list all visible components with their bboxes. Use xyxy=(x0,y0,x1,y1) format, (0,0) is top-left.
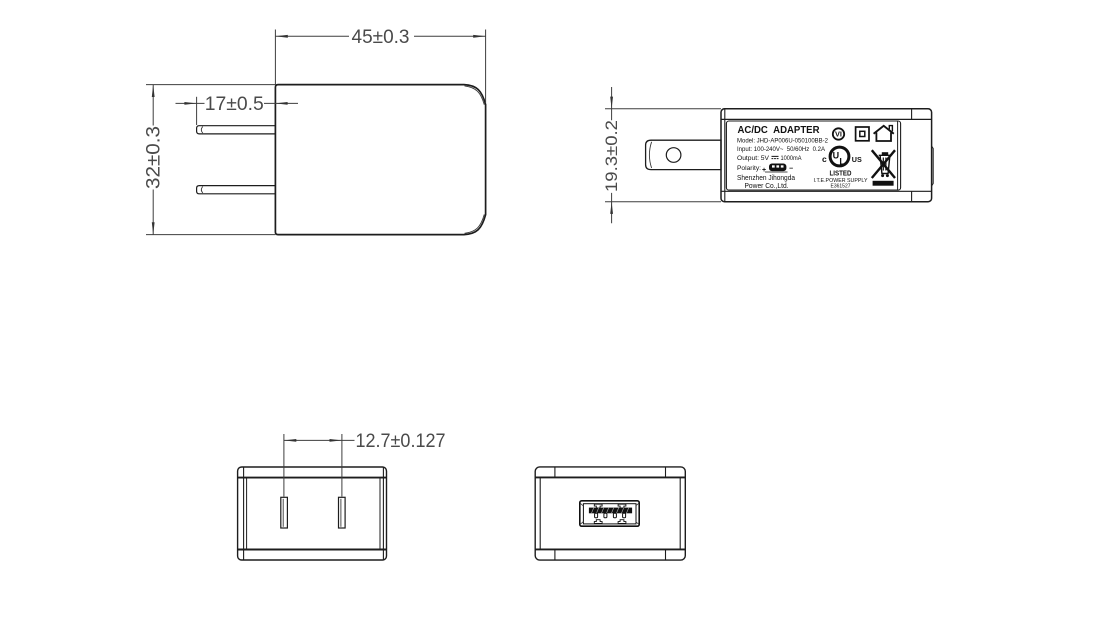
svg-text:1000mA: 1000mA xyxy=(781,155,803,162)
svg-text:−: − xyxy=(789,165,793,172)
svg-text:c: c xyxy=(822,154,827,164)
svg-text:VI: VI xyxy=(835,132,842,139)
svg-text:45±0.3: 45±0.3 xyxy=(352,27,410,48)
svg-text:19.3±0.2: 19.3±0.2 xyxy=(602,120,621,192)
svg-text:Polarity:: Polarity: xyxy=(737,165,761,172)
svg-text:32±0.3: 32±0.3 xyxy=(143,126,164,189)
svg-text:Output: 5V: Output: 5V xyxy=(737,155,770,162)
svg-text:Input: 100-240V~ 50/60Hz 0.2: Input: 100-240V~ 50/60Hz 0.2A xyxy=(737,146,826,153)
svg-text:AC/DC ADAPTER: AC/DC ADAPTER xyxy=(738,125,821,136)
svg-text:17±0.5: 17±0.5 xyxy=(205,94,264,115)
svg-text:LISTED: LISTED xyxy=(830,168,853,177)
svg-text:Shenzhen Jihongda: Shenzhen Jihongda xyxy=(737,175,795,182)
svg-text:+: + xyxy=(762,167,766,174)
svg-text:U: U xyxy=(833,150,840,160)
svg-text:L: L xyxy=(839,156,845,166)
svg-text:US: US xyxy=(852,155,862,164)
svg-text:12.7±0.127: 12.7±0.127 xyxy=(356,430,446,452)
svg-text:Model: JHD-AP006U-050100BB-2: Model: JHD-AP006U-050100BB-2 xyxy=(737,138,828,145)
svg-text:Power Co.,Ltd.: Power Co.,Ltd. xyxy=(745,183,789,190)
svg-text:E361527: E361527 xyxy=(831,184,851,190)
